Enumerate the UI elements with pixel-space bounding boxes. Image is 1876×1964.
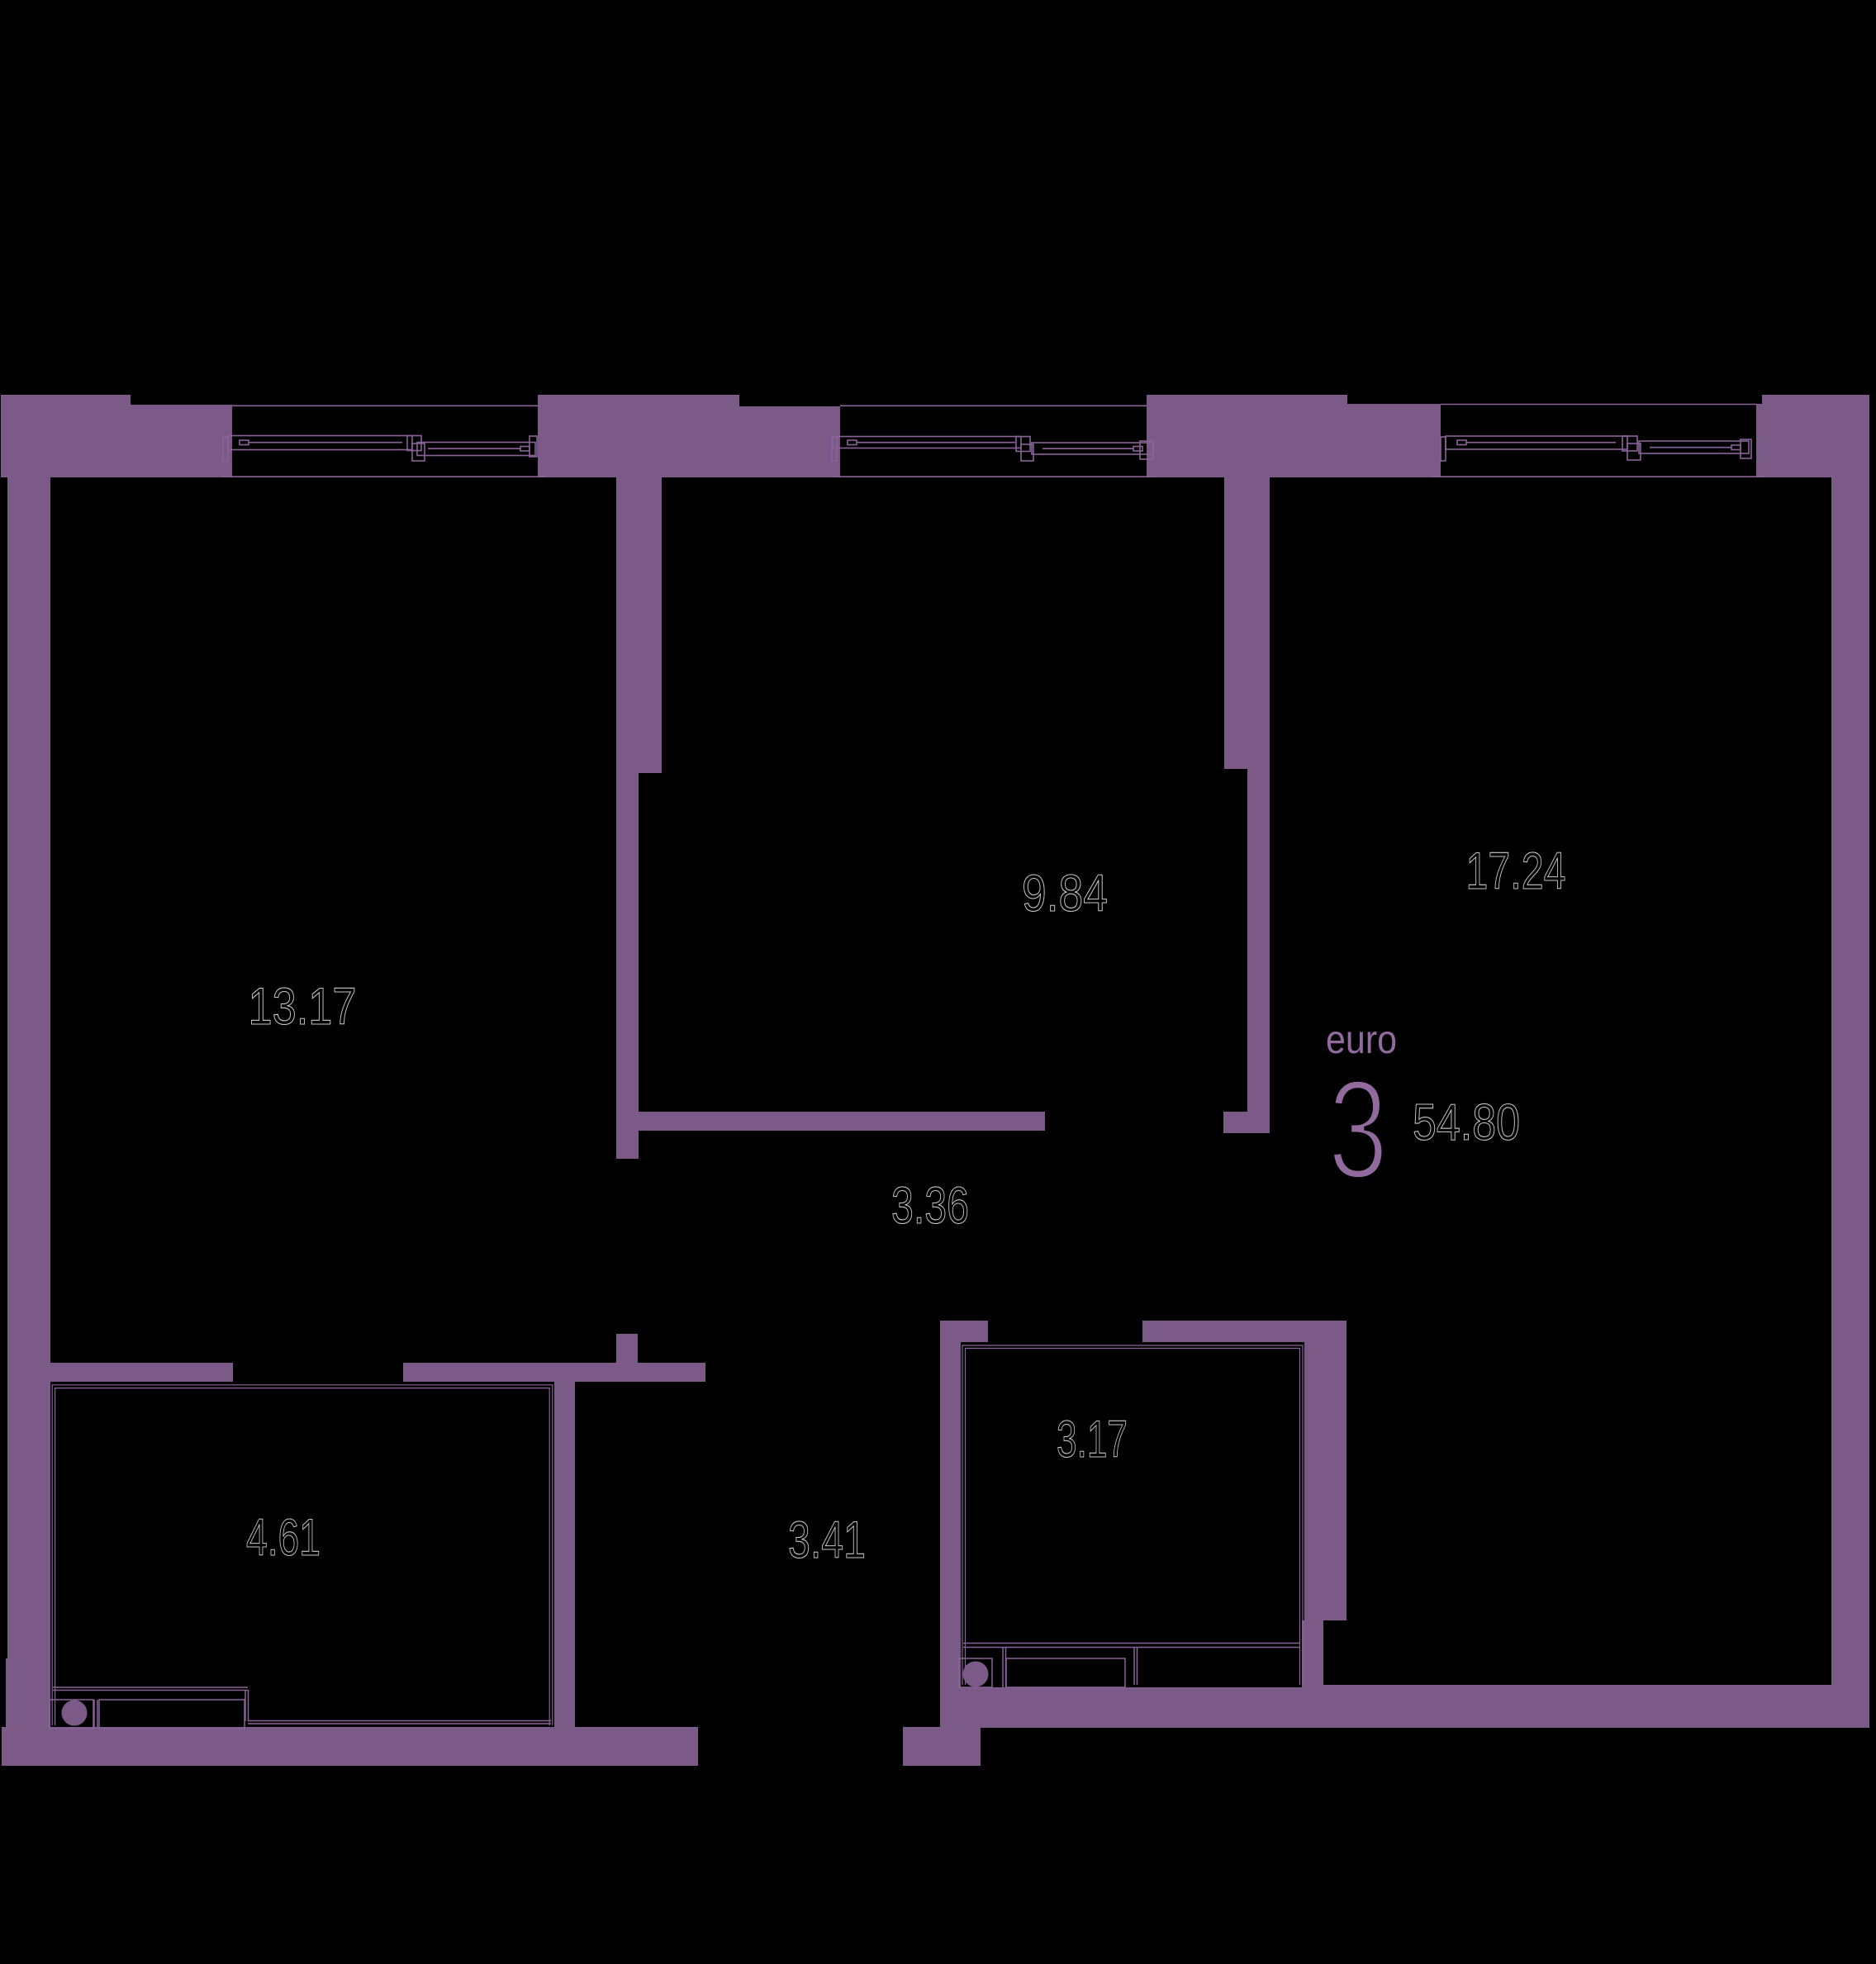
- svg-text:3.17: 3.17: [1057, 1411, 1128, 1468]
- svg-text:3.36: 3.36: [891, 1177, 969, 1235]
- svg-text:13.17: 13.17: [249, 978, 357, 1036]
- svg-text:3: 3: [1328, 1051, 1388, 1208]
- svg-text:54.80: 54.80: [1413, 1094, 1520, 1151]
- svg-text:4.61: 4.61: [246, 1509, 321, 1567]
- svg-text:9.84: 9.84: [1022, 865, 1108, 923]
- svg-text:17.24: 17.24: [1466, 842, 1566, 900]
- svg-text:3.41: 3.41: [788, 1511, 866, 1569]
